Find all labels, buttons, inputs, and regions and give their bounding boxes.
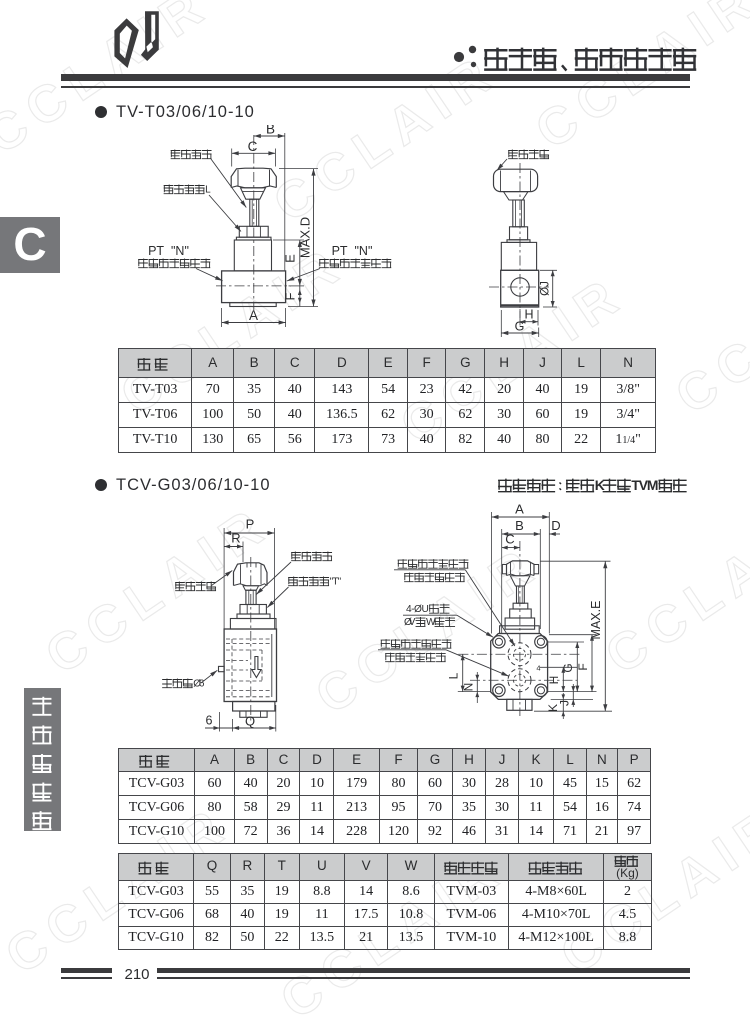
svg-text:4-ØU: 4-ØU <box>406 604 429 615</box>
svg-text:G: G <box>515 319 525 333</box>
svg-text:D: D <box>551 518 560 533</box>
svg-text:ØV: ØV <box>404 617 416 628</box>
svg-text:B: B <box>515 518 524 533</box>
svg-text:6: 6 <box>206 714 213 728</box>
svg-text:R: R <box>231 531 240 546</box>
svg-text:E: E <box>283 254 298 263</box>
svg-text:MAX.E: MAX.E <box>589 601 603 640</box>
svg-text:H: H <box>524 307 533 321</box>
svg-text:A: A <box>249 308 258 323</box>
svg-text:P: P <box>246 517 255 532</box>
svg-text:TVM: TVM <box>631 477 658 493</box>
svg-text:"T": "T" <box>330 577 342 588</box>
svg-text:F: F <box>576 663 590 670</box>
svg-text:4: 4 <box>536 664 540 673</box>
svg-text:B: B <box>266 125 275 137</box>
svg-text:L: L <box>205 185 211 196</box>
svg-text:W: W <box>426 617 436 628</box>
svg-text:L: L <box>447 672 461 679</box>
svg-text:ØJ: ØJ <box>540 281 552 296</box>
svg-text:Ø6: Ø6 <box>193 679 205 690</box>
svg-text:PT "N": PT "N" <box>332 244 373 258</box>
svg-text:H: H <box>547 676 561 685</box>
svg-text:PT "N": PT "N" <box>148 244 189 258</box>
svg-text:K: K <box>595 477 605 493</box>
svg-text:Q: Q <box>245 714 255 729</box>
svg-text:A: A <box>515 502 524 517</box>
svg-text:F: F <box>283 292 298 300</box>
svg-text:C: C <box>248 139 258 154</box>
svg-text:N: N <box>461 683 475 692</box>
svg-text:C: C <box>505 532 514 547</box>
svg-text:K: K <box>546 704 560 712</box>
